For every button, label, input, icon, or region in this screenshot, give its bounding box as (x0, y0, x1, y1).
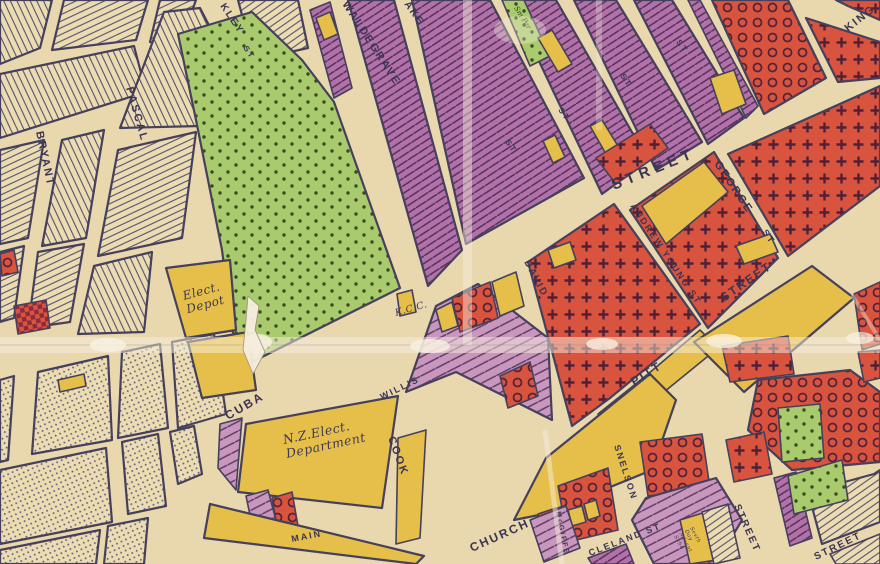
block-lots-stippled (32, 356, 112, 454)
zoning-map-canvas: BRYANTPASCALKLEYSTWALDEGRAVEAKESm ParSTS… (0, 0, 880, 564)
block-red-checker (14, 300, 50, 334)
block-lots-stippled (104, 518, 148, 564)
block-red-cross-small (726, 432, 772, 482)
block-lots-stippled (122, 434, 166, 514)
block-green-inset (778, 404, 824, 462)
block-red-rings-small (0, 250, 18, 276)
block-lots-stippled (118, 344, 168, 438)
zoning-map: BRYANTPASCALKLEYSTWALDEGRAVEAKESm ParSTS… (0, 0, 880, 564)
